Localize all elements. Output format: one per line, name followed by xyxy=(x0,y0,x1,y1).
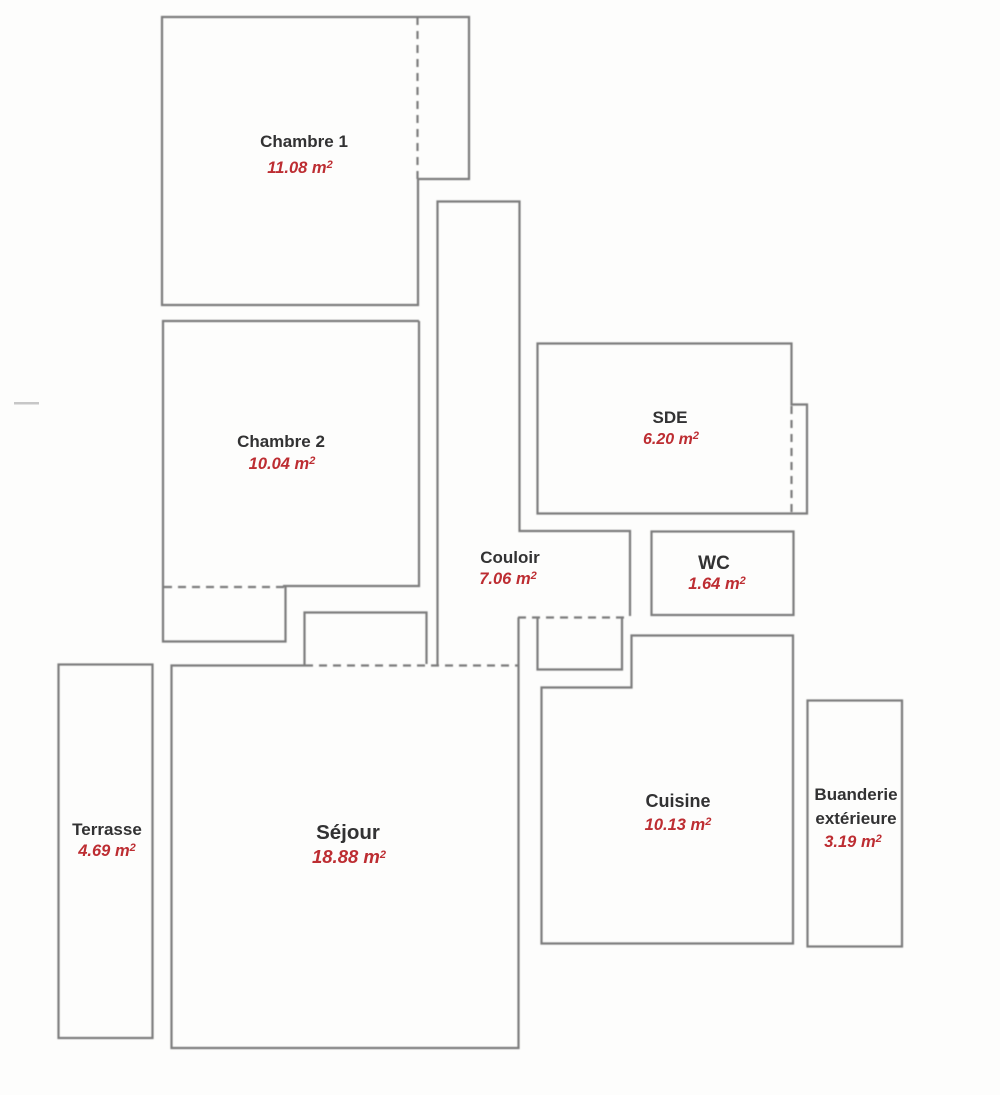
svg-text:SDE: SDE xyxy=(653,408,688,427)
svg-text:Cuisine: Cuisine xyxy=(645,791,710,811)
svg-text:18.88 m2: 18.88 m2 xyxy=(312,846,386,867)
svg-text:Buanderie: Buanderie xyxy=(814,785,897,804)
svg-text:Terrasse: Terrasse xyxy=(72,820,142,839)
svg-text:3.19 m2: 3.19 m2 xyxy=(824,833,882,851)
svg-text:10.04 m2: 10.04 m2 xyxy=(249,455,316,473)
svg-text:Couloir: Couloir xyxy=(480,548,540,567)
svg-text:4.69 m2: 4.69 m2 xyxy=(77,842,136,860)
svg-text:Séjour: Séjour xyxy=(316,821,380,844)
svg-text:Chambre 1: Chambre 1 xyxy=(260,132,348,151)
svg-text:1.64 m2: 1.64 m2 xyxy=(688,575,746,593)
svg-text:Chambre 2: Chambre 2 xyxy=(237,432,325,451)
svg-text:11.08 m2: 11.08 m2 xyxy=(267,159,332,177)
svg-text:6.20 m2: 6.20 m2 xyxy=(643,430,699,448)
svg-text:10.13 m2: 10.13 m2 xyxy=(645,816,712,834)
svg-text:7.06 m2: 7.06 m2 xyxy=(479,570,537,588)
svg-text:extérieure: extérieure xyxy=(815,809,896,828)
svg-text:WC: WC xyxy=(698,553,730,574)
